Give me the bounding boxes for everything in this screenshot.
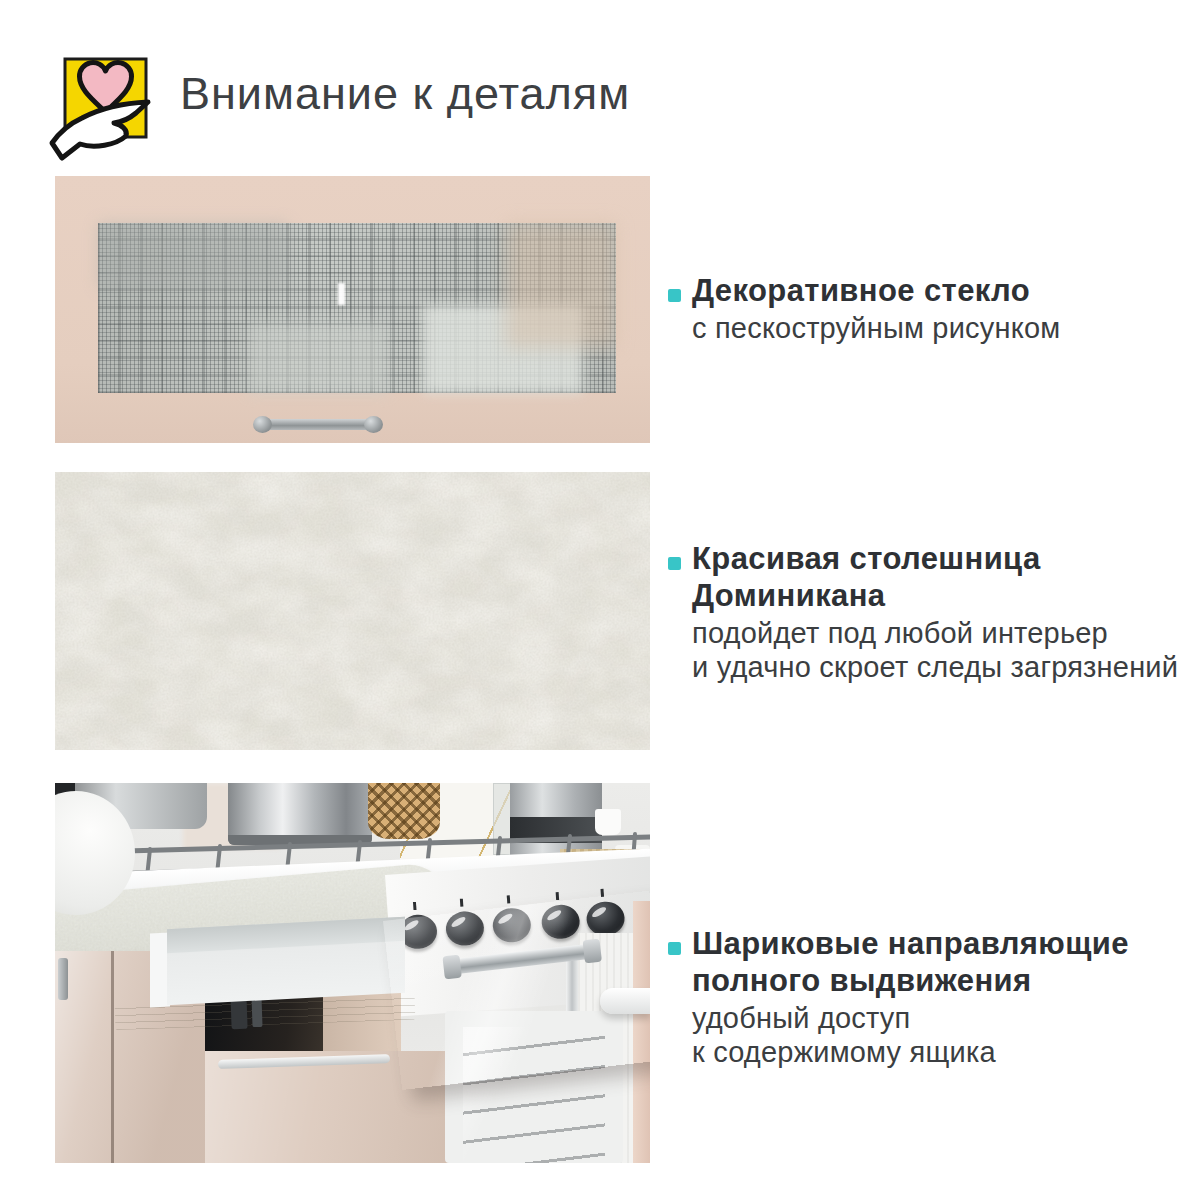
feature-description: с пескоструйным рисунком	[692, 311, 1188, 345]
product-infographic: Внимание к деталям Декоративное стекло с…	[0, 0, 1200, 1200]
feature-glass: Декоративное стекло с пескоструйным рису…	[668, 272, 1188, 345]
hand-holding-heart-icon	[48, 44, 160, 162]
drawer-handle	[446, 943, 599, 975]
feature-countertop: Красивая столешница Доминикана подойдет …	[668, 540, 1188, 684]
bullet-marker	[668, 942, 681, 955]
feature-title: Красивая столешница Доминикана	[692, 540, 1188, 614]
sandblasted-glass-panel	[98, 223, 616, 393]
feature-description: удобный доступ к содержимому ящика	[692, 1001, 1188, 1069]
drawer-box	[167, 917, 405, 1005]
door-handle	[258, 419, 378, 430]
feature-description: подойдет под любой интерьер и удачно скр…	[692, 616, 1188, 684]
feature-title: Декоративное стекло	[692, 272, 1188, 309]
drawer-front-panel	[383, 891, 650, 1090]
page-title: Внимание к деталям	[180, 68, 630, 120]
dominikana-countertop-photo	[55, 472, 650, 750]
bullet-marker	[668, 289, 681, 302]
open-drawer-ball-slides-photo	[55, 783, 650, 1163]
cabinet-handle	[58, 958, 68, 1000]
feature-slides: Шариковые направляющие полного выдвижени…	[668, 925, 1188, 1069]
bullet-marker	[668, 557, 681, 570]
feature-title: Шариковые направляющие полного выдвижени…	[692, 925, 1188, 999]
glass-cabinet-door-photo	[55, 176, 650, 443]
